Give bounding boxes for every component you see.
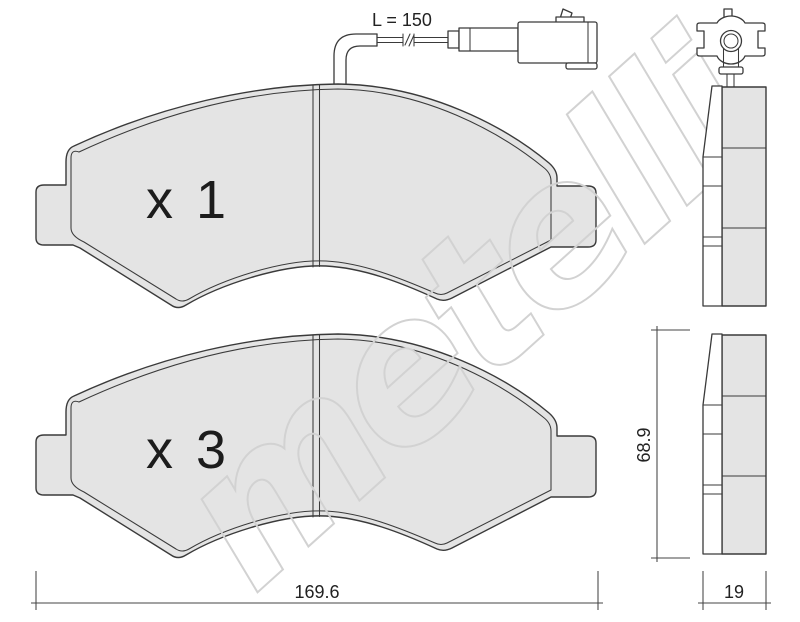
sensor-length-label: L = 150 — [372, 10, 432, 30]
dimension-width-value: 169.6 — [294, 582, 339, 602]
dimension-thickness-value: 19 — [724, 582, 744, 602]
pad2-quantity-label: x 3 — [146, 420, 230, 480]
side-view-top — [703, 73, 766, 306]
brake-pad-drawing: metelli x 1 x 3 L = 150 — [0, 0, 800, 622]
side-view-bottom — [703, 334, 766, 554]
pad1-quantity-label: x 1 — [146, 170, 230, 230]
technical-drawing-page: metelli x 1 x 3 L = 150 — [0, 0, 800, 622]
dimension-height-value: 68.9 — [634, 427, 654, 462]
